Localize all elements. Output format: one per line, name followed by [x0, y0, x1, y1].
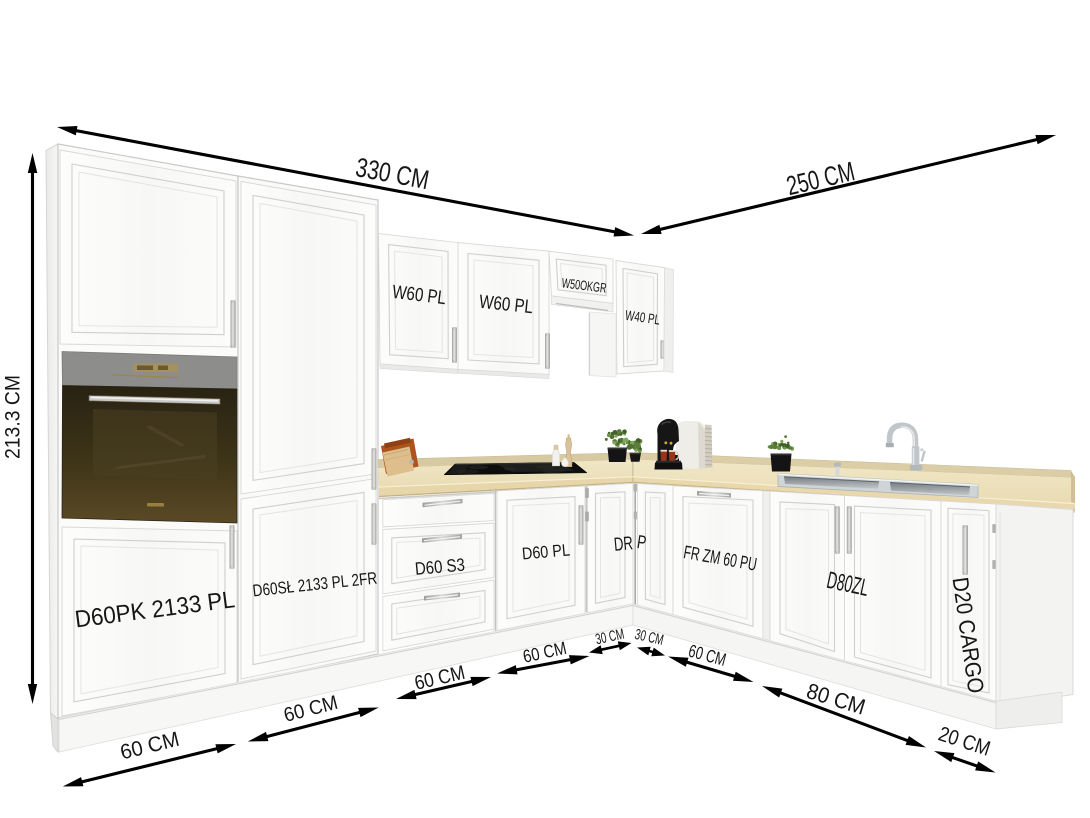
- svg-text:DR: DR: [613, 533, 634, 556]
- svg-text:213.3 CM: 213.3 CM: [2, 375, 25, 459]
